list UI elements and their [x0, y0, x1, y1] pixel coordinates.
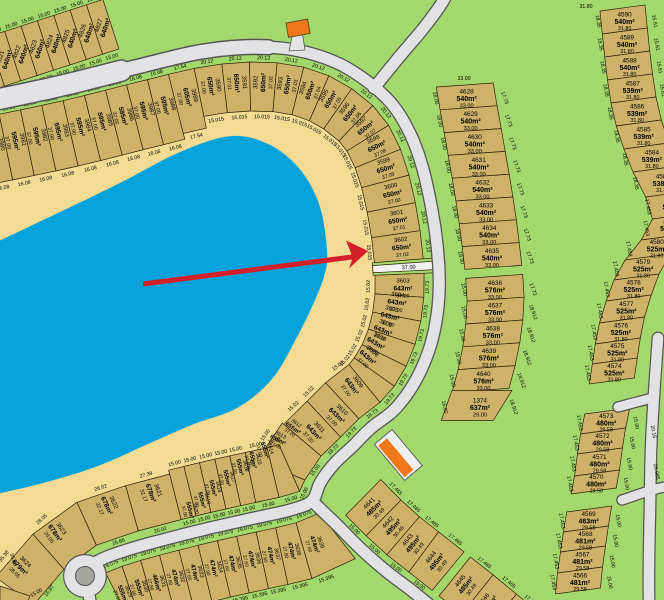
svg-text:4631: 4631	[472, 157, 487, 164]
svg-text:31.80: 31.80	[656, 188, 664, 194]
svg-text:4566: 4566	[573, 573, 588, 580]
svg-text:31.80: 31.80	[580, 4, 593, 10]
svg-text:538m²: 538m²	[653, 181, 664, 188]
svg-text:480m²: 480m²	[596, 421, 617, 428]
svg-text:4572: 4572	[595, 433, 610, 440]
svg-text:31.80: 31.80	[645, 164, 659, 170]
svg-text:31.80: 31.80	[618, 26, 632, 32]
svg-text:33.00: 33.00	[488, 318, 502, 324]
svg-text:4629: 4629	[463, 111, 478, 118]
svg-text:4580: 4580	[650, 239, 664, 246]
svg-text:4567: 4567	[575, 552, 590, 559]
svg-text:540m²: 540m²	[617, 42, 638, 49]
svg-text:33.00: 33.00	[485, 263, 499, 269]
svg-text:4570: 4570	[589, 474, 604, 481]
svg-text:4638: 4638	[486, 325, 501, 332]
svg-text:29.58: 29.58	[590, 489, 604, 495]
svg-text:4578: 4578	[626, 280, 641, 287]
svg-text:540m²: 540m²	[460, 119, 481, 126]
svg-text:525m²: 525m²	[616, 309, 637, 316]
svg-text:31.80: 31.80	[608, 378, 622, 384]
svg-text:4633: 4633	[479, 202, 494, 209]
svg-text:4571: 4571	[592, 454, 607, 461]
svg-text:4632: 4632	[475, 180, 490, 187]
svg-text:540m²: 540m²	[614, 19, 635, 26]
svg-text:4574: 4574	[607, 363, 622, 370]
svg-text:3591: 3591	[240, 76, 247, 90]
svg-text:3592: 3592	[253, 75, 259, 89]
svg-text:31.80: 31.80	[630, 118, 644, 124]
svg-text:31.80: 31.80	[637, 141, 651, 147]
svg-text:31.80: 31.80	[626, 95, 640, 101]
svg-text:4636: 4636	[488, 280, 503, 287]
svg-text:539m²: 539m²	[642, 157, 663, 164]
svg-text:33.00: 33.00	[458, 76, 471, 82]
svg-text:33.00: 33.00	[488, 295, 502, 301]
svg-text:637m²: 637m²	[470, 405, 491, 412]
svg-text:19.73: 19.73	[425, 281, 431, 294]
svg-text:540m²: 540m²	[619, 65, 640, 72]
svg-text:480m²: 480m²	[589, 462, 610, 469]
svg-text:525m²: 525m²	[611, 330, 632, 337]
svg-text:37.01: 37.01	[225, 77, 232, 90]
svg-text:29.00: 29.00	[473, 412, 487, 418]
svg-text:33.00: 33.00	[464, 126, 478, 132]
svg-text:4640: 4640	[476, 371, 491, 378]
svg-text:4568: 4568	[578, 531, 593, 538]
svg-text:540m²: 540m²	[456, 96, 477, 103]
svg-text:4587: 4587	[626, 81, 641, 88]
svg-text:15.015: 15.015	[231, 114, 247, 121]
svg-text:650m²: 650m²	[232, 73, 240, 93]
svg-text:31.80: 31.80	[627, 294, 641, 300]
svg-text:31.80: 31.80	[636, 274, 650, 280]
svg-text:20.12: 20.12	[257, 55, 270, 61]
svg-text:4635: 4635	[485, 248, 500, 255]
svg-text:29.58: 29.58	[576, 566, 590, 572]
svg-text:525m²: 525m²	[604, 371, 625, 378]
svg-text:481m²: 481m²	[572, 559, 593, 566]
svg-text:525m²: 525m²	[633, 267, 654, 274]
svg-text:31.80: 31.80	[614, 337, 628, 343]
svg-text:4639: 4639	[482, 348, 497, 355]
svg-text:4575: 4575	[610, 343, 625, 350]
svg-text:525m²: 525m²	[660, 226, 664, 233]
svg-text:576m²: 576m²	[479, 356, 500, 363]
svg-text:33.00: 33.00	[460, 103, 474, 109]
svg-text:539m²: 539m²	[633, 134, 654, 141]
svg-text:525m²: 525m²	[607, 351, 628, 358]
svg-text:20.12: 20.12	[229, 56, 242, 63]
svg-text:481m²: 481m²	[575, 539, 596, 546]
svg-text:15.02: 15.02	[366, 280, 372, 293]
svg-text:33.00: 33.00	[468, 149, 482, 155]
svg-text:4585: 4585	[636, 127, 651, 134]
svg-text:37.02: 37.02	[268, 76, 274, 89]
svg-text:4637: 4637	[488, 303, 503, 310]
svg-text:29.58: 29.58	[573, 587, 587, 593]
svg-text:540m²: 540m²	[465, 142, 486, 149]
svg-text:31.80: 31.80	[623, 72, 637, 78]
svg-text:4583: 4583	[656, 174, 664, 181]
svg-text:3603: 3603	[396, 278, 410, 284]
svg-text:4573: 4573	[599, 413, 614, 420]
svg-text:4579: 4579	[636, 259, 651, 266]
svg-text:540m²: 540m²	[472, 187, 493, 194]
svg-text:31.80: 31.80	[650, 254, 664, 260]
svg-text:481m²: 481m²	[570, 580, 591, 587]
svg-text:4628: 4628	[459, 88, 474, 95]
svg-text:576m²: 576m²	[485, 310, 506, 317]
svg-text:4588: 4588	[622, 58, 637, 65]
svg-text:576m²: 576m²	[473, 379, 494, 386]
svg-text:33.00: 33.00	[479, 217, 493, 223]
svg-text:525m²: 525m²	[647, 247, 664, 254]
svg-text:576m²: 576m²	[485, 287, 506, 294]
svg-text:540m²: 540m²	[479, 233, 500, 240]
svg-text:463m²: 463m²	[578, 519, 599, 526]
svg-text:539m²: 539m²	[623, 88, 644, 95]
svg-text:33.00: 33.00	[482, 240, 496, 246]
svg-text:33.00: 33.00	[486, 340, 500, 346]
svg-text:33.00: 33.00	[482, 363, 496, 369]
svg-text:29.58: 29.58	[596, 448, 610, 454]
svg-text:33.00: 33.00	[472, 172, 486, 178]
svg-text:539m²: 539m²	[627, 111, 648, 118]
svg-text:4576: 4576	[614, 323, 629, 330]
svg-text:540m²: 540m²	[469, 164, 490, 171]
svg-text:31.80: 31.80	[620, 49, 634, 55]
svg-text:480m²: 480m²	[592, 441, 613, 448]
svg-text:4577: 4577	[619, 301, 634, 308]
svg-text:4584: 4584	[645, 150, 660, 157]
svg-text:4586: 4586	[630, 104, 645, 111]
svg-text:4590: 4590	[617, 12, 632, 19]
svg-text:1374: 1374	[473, 397, 488, 404]
svg-text:4634: 4634	[482, 225, 497, 232]
svg-text:540m²: 540m²	[476, 210, 497, 217]
svg-text:525m²: 525m²	[623, 287, 644, 294]
svg-text:37.00: 37.00	[402, 264, 416, 271]
svg-text:33.00: 33.00	[477, 386, 491, 392]
svg-text:4589: 4589	[620, 35, 635, 42]
svg-text:31.80: 31.80	[620, 316, 634, 322]
svg-text:4630: 4630	[468, 134, 483, 141]
svg-text:650m²: 650m²	[260, 72, 268, 92]
svg-text:33.00: 33.00	[476, 195, 490, 201]
svg-text:540m²: 540m²	[482, 256, 503, 263]
svg-text:480m²: 480m²	[586, 482, 607, 489]
svg-text:15.015: 15.015	[254, 114, 270, 120]
svg-text:576m²: 576m²	[483, 333, 504, 340]
svg-text:4569: 4569	[581, 511, 596, 518]
svg-text:29.58: 29.58	[579, 546, 593, 552]
